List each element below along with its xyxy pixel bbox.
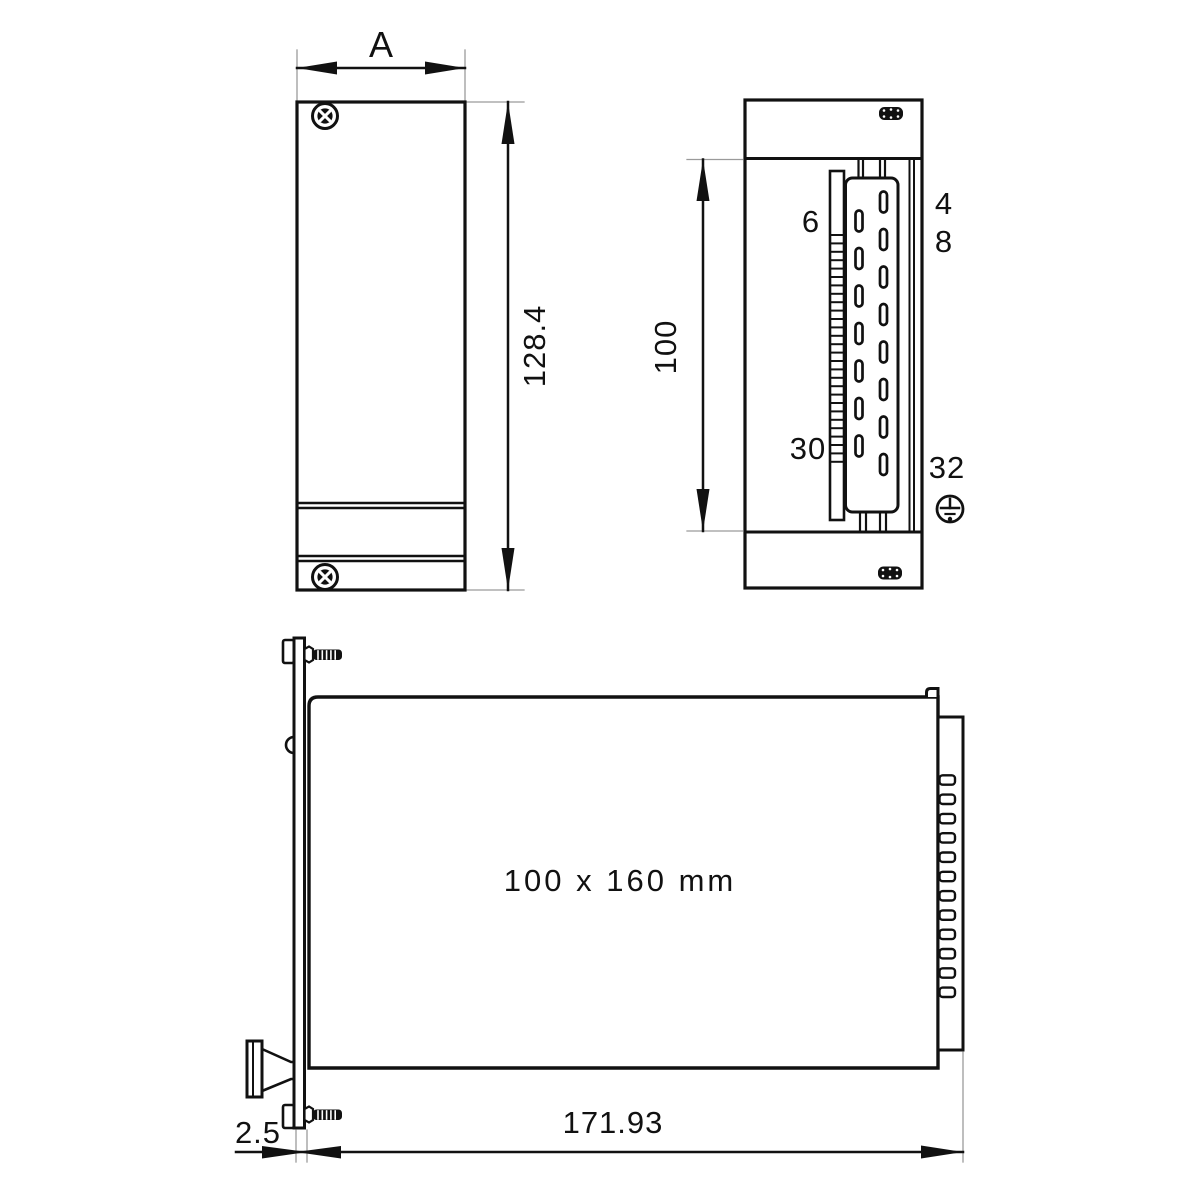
pin-slot-right (880, 379, 887, 400)
arrowhead-down-icon (697, 489, 710, 531)
board-size-label: 100 x 160 mm (504, 863, 736, 898)
dimension-height-128-4: 128.4 (502, 102, 553, 590)
pin-slot-left (856, 361, 863, 382)
arrowhead-down-icon (502, 548, 515, 590)
dimension-label-depth: 171.93 (563, 1105, 664, 1140)
connector-tooth (940, 833, 956, 842)
captive-screw-bottom-icon (305, 1107, 343, 1123)
drawing-canvas: A 128.4 (0, 0, 1200, 1200)
din-connector-body (846, 178, 899, 512)
collar-bottom (283, 1105, 294, 1128)
arrowhead-right-icon (425, 62, 465, 75)
pin-slot-right (880, 304, 887, 325)
connector-tooth (940, 795, 956, 804)
contact-strip (830, 171, 844, 520)
rear-connector-view: 6 4 8 30 32 100 (648, 100, 965, 588)
dimension-label-100: 100 (648, 320, 683, 375)
arrowhead-right-end-icon (921, 1146, 963, 1159)
connector-tooth (940, 949, 956, 958)
dimension-width-A: A (297, 24, 465, 75)
pin-slot-left (856, 398, 863, 419)
screw-head-top-icon (313, 104, 338, 129)
dimension-label-height: 128.4 (517, 305, 552, 388)
dimension-label-width: A (369, 24, 393, 65)
connector-tooth (940, 930, 956, 939)
pin-slot-right (880, 454, 887, 475)
fixing-slot-bottom-icon (878, 567, 902, 580)
front-panel-outline (297, 102, 465, 590)
captive-screw-top-icon (305, 647, 343, 663)
pin-slot-right (880, 267, 887, 288)
pin-slot-left (856, 248, 863, 269)
connector-tooth (940, 988, 956, 997)
connector-tooth (940, 968, 956, 977)
handle-cap (247, 1041, 262, 1097)
connector-tooth (940, 853, 956, 862)
pin-slot-right (880, 192, 887, 213)
pin-slot-right (880, 417, 887, 438)
connector-tooth (940, 814, 956, 823)
rear-connector-block (938, 717, 963, 1050)
connector-tooth (940, 910, 956, 919)
side-view: 100 x 160 mm 2.5 171.93 (235, 638, 963, 1162)
pin-label-8: 8 (935, 224, 953, 259)
arrowhead-up-icon (697, 160, 710, 202)
screw-head-bottom-icon (313, 565, 338, 590)
arrowhead-up-icon (502, 102, 515, 144)
technical-drawing-page: A 128.4 (0, 0, 1200, 1200)
collar-top (283, 640, 294, 663)
arrowhead-left-icon (297, 62, 337, 75)
pin-label-4: 4 (935, 186, 953, 221)
handle-neck (262, 1049, 295, 1091)
pin-slot-left (856, 286, 863, 307)
dimension-height-100: 100 (648, 160, 743, 532)
pin-slot-left (856, 323, 863, 344)
connector-tooth (940, 891, 956, 900)
pin-slot-right (880, 342, 887, 363)
pin-slot-right (880, 229, 887, 250)
locating-tab (927, 689, 939, 698)
pin-label-32: 32 (929, 450, 965, 485)
pin-label-6: 6 (802, 204, 820, 239)
dimension-label-panel-thickness: 2.5 (235, 1115, 281, 1150)
pin-slot-left (856, 211, 863, 232)
connector-tooth (940, 775, 956, 784)
pin-slot-left (856, 436, 863, 457)
fixing-slot-top-icon (879, 107, 903, 120)
front-panel-strip (294, 638, 305, 1128)
front-panel-view: A 128.4 (297, 24, 552, 590)
protective-earth-icon (937, 496, 963, 522)
connector-tooth (940, 872, 956, 881)
pin-label-30: 30 (790, 431, 826, 466)
